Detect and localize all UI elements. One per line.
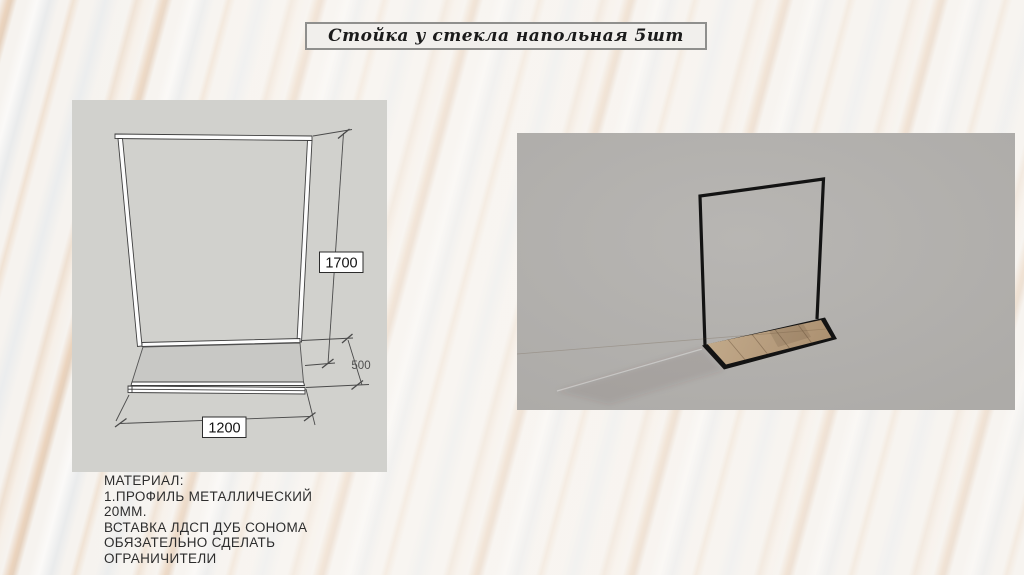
render-3d-panel	[517, 133, 1015, 410]
sketch-top-bar	[115, 134, 312, 141]
material-note-line: МАТЕРИАЛ:	[104, 473, 312, 489]
sketch-base-front-edge	[131, 382, 305, 386]
technical-drawing-panel: 1700 1200 500	[72, 100, 387, 472]
render-3d	[517, 133, 1015, 410]
material-note: МАТЕРИАЛ: 1.ПРОФИЛЬ МЕТАЛЛИЧЕСКИЙ 20ММ. …	[104, 473, 312, 566]
render-background	[517, 133, 1015, 410]
sketch-right-leg	[297, 141, 312, 343]
stand-frame-sketch	[115, 134, 312, 394]
technical-drawing: 1700 1200 500	[72, 100, 387, 472]
material-note-line: ВСТАВКА ЛДСП ДУБ СОНОМА	[104, 520, 312, 536]
slide-title: Стойка у стекла напольная 5шт	[328, 26, 684, 46]
height-dimension: 1700	[325, 256, 357, 272]
material-note-line: ОГРАНИЧИТЕЛИ	[104, 551, 312, 567]
sketch-left-leg	[118, 139, 142, 347]
material-note-line: 20ММ.	[104, 504, 312, 520]
material-note-line: 1.ПРОФИЛЬ МЕТАЛЛИЧЕСКИЙ	[104, 489, 312, 505]
slide: Стойка у стекла напольная 5шт	[0, 0, 1024, 575]
depth-dimension: 500	[351, 360, 370, 372]
material-note-line: ОБЯЗАТЕЛЬНО СДЕЛАТЬ	[104, 535, 312, 551]
slide-title-box: Стойка у стекла напольная 5шт	[305, 22, 707, 50]
sketch-base-top	[132, 343, 304, 382]
width-dimension: 1200	[208, 421, 240, 437]
